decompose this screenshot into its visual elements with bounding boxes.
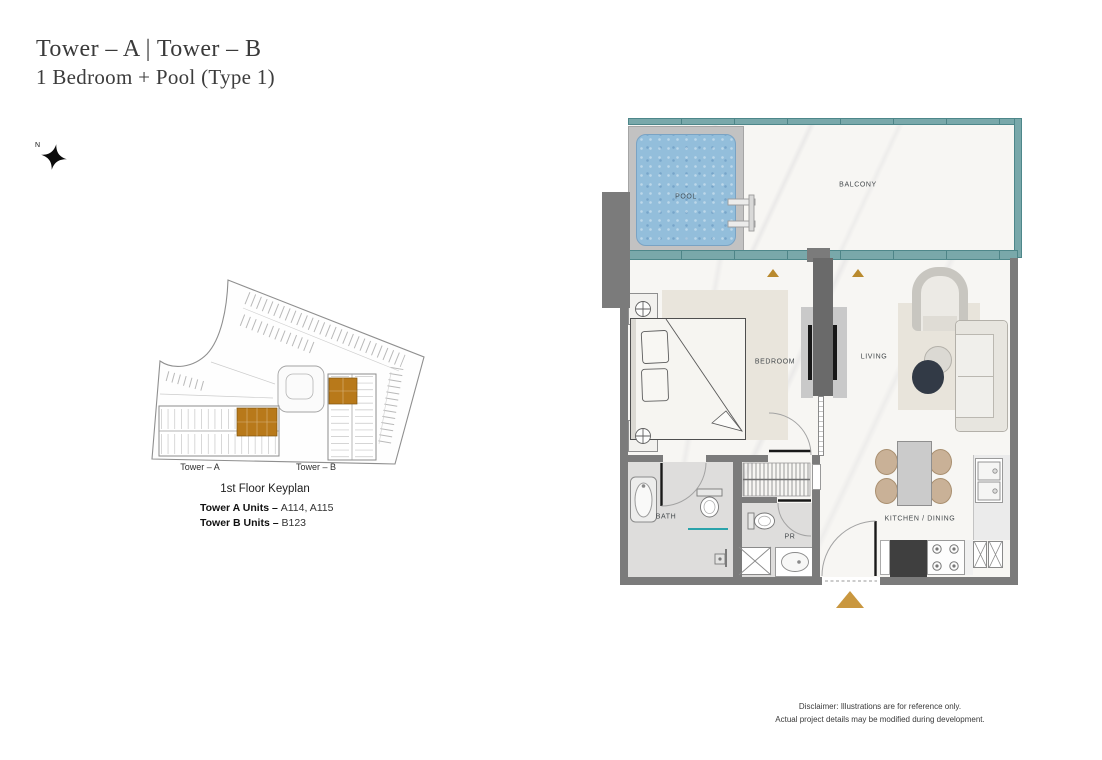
entry-threshold: [822, 577, 880, 585]
kitchen-counter-gap: [965, 540, 973, 575]
north-indicator: N: [32, 136, 72, 176]
armchair-seat: [923, 316, 957, 331]
bath-floor: [628, 462, 733, 577]
dining-chair: [875, 449, 898, 475]
wall-room-divider: [813, 258, 833, 396]
keyplan: Tower – A Tower – B: [145, 264, 437, 476]
kitchen-counter-dark: [890, 540, 927, 577]
tv-screen-bedroom: [808, 325, 812, 380]
kitchen-sink-unit: [975, 458, 1003, 503]
tower-b-units: Tower B Units – B123: [200, 516, 333, 531]
tower-b-units-value: B123: [281, 517, 306, 529]
wall-bath-closet: [733, 455, 742, 577]
wall-closet-pr: [742, 497, 777, 503]
room-label-kitchen: KITCHEN / DINING: [885, 516, 956, 523]
keyplan-tower-b-label: Tower – B: [296, 462, 336, 472]
service-shaft: [739, 547, 771, 575]
room-label-bedroom: BEDROOM: [755, 359, 795, 366]
header: Tower – A | Tower – B 1 Bedroom + Pool (…: [36, 36, 275, 90]
sofa-back: [993, 334, 1007, 418]
sofa-arm-top: [956, 321, 1007, 335]
page-title: Tower – A | Tower – B: [36, 36, 275, 63]
balcony-access-marker-icon: [767, 269, 779, 277]
wall-bottom-right: [880, 577, 1018, 585]
sofa-cushion-line: [958, 376, 994, 377]
room-label-living: LIVING: [861, 354, 888, 361]
wall-bottom-left: [620, 577, 822, 585]
dining-chair: [875, 478, 898, 504]
keyplan-tower-a-label: Tower – A: [180, 462, 220, 472]
dining-chair: [929, 478, 952, 504]
sofa: [955, 320, 1008, 432]
page-subtitle: 1 Bedroom + Pool (Type 1): [36, 65, 275, 90]
balcony-railing-top: [628, 118, 1022, 125]
north-star-icon: [39, 142, 69, 172]
dining-table: [897, 441, 932, 506]
keyplan-caption: 1st Floor Keyplan: [150, 483, 380, 495]
kitchen-cabinet-end: [880, 540, 890, 575]
tower-b-units-label: Tower B Units –: [200, 517, 281, 529]
tower-a-units-label: Tower A Units –: [200, 502, 281, 514]
wall-right: [1010, 258, 1018, 585]
pr-sink-counter: [775, 547, 815, 577]
kitchen-cabinet-x1: [973, 541, 987, 568]
bed: [630, 318, 746, 440]
keyplan-units: Tower A Units – A114, A115 Tower B Units…: [200, 501, 333, 531]
tower-a-units: Tower A Units – A114, A115: [200, 501, 333, 516]
wall-bedroom-bath-a: [628, 455, 663, 462]
room-label-pr: PR: [785, 534, 796, 541]
room-label-balcony: BALCONY: [839, 182, 877, 189]
brochure-page: Tower – A | Tower – B 1 Bedroom + Pool (…: [0, 0, 1102, 760]
entry-marker-icon: [836, 591, 864, 608]
closet-door: [812, 464, 821, 490]
stove: [927, 540, 965, 575]
disclaimer: Disclaimer: Illustrations are for refere…: [720, 701, 1040, 727]
keyplan-tower-b: [328, 374, 376, 460]
kitchen-cabinet-x2: [988, 541, 1003, 568]
tower-a-units-value: A114, A115: [281, 502, 334, 514]
sliding-door: [818, 396, 824, 456]
coffee-table: [912, 360, 944, 394]
balcony-access-marker-icon: [852, 269, 864, 277]
sofa-arm-bottom: [956, 417, 1007, 431]
floor-plan: POOL BALCONY BEDROOM LIVING BATH PR KITC…: [598, 115, 1022, 615]
keyplan-amenity: [278, 366, 324, 412]
disclaimer-line2: Actual project details may be modified d…: [720, 714, 1040, 727]
north-label: N: [35, 142, 40, 149]
tv-screen-living: [833, 325, 837, 380]
pool: [636, 134, 736, 246]
wall-left: [620, 250, 628, 585]
disclaimer-line1: Disclaimer: Illustrations are for refere…: [720, 701, 1040, 714]
keyplan-tower-a: [159, 406, 279, 456]
room-label-bath: BATH: [656, 514, 677, 521]
room-label-pool: POOL: [675, 194, 697, 201]
dining-chair: [929, 449, 952, 475]
balcony-railing-right: [1014, 118, 1022, 258]
